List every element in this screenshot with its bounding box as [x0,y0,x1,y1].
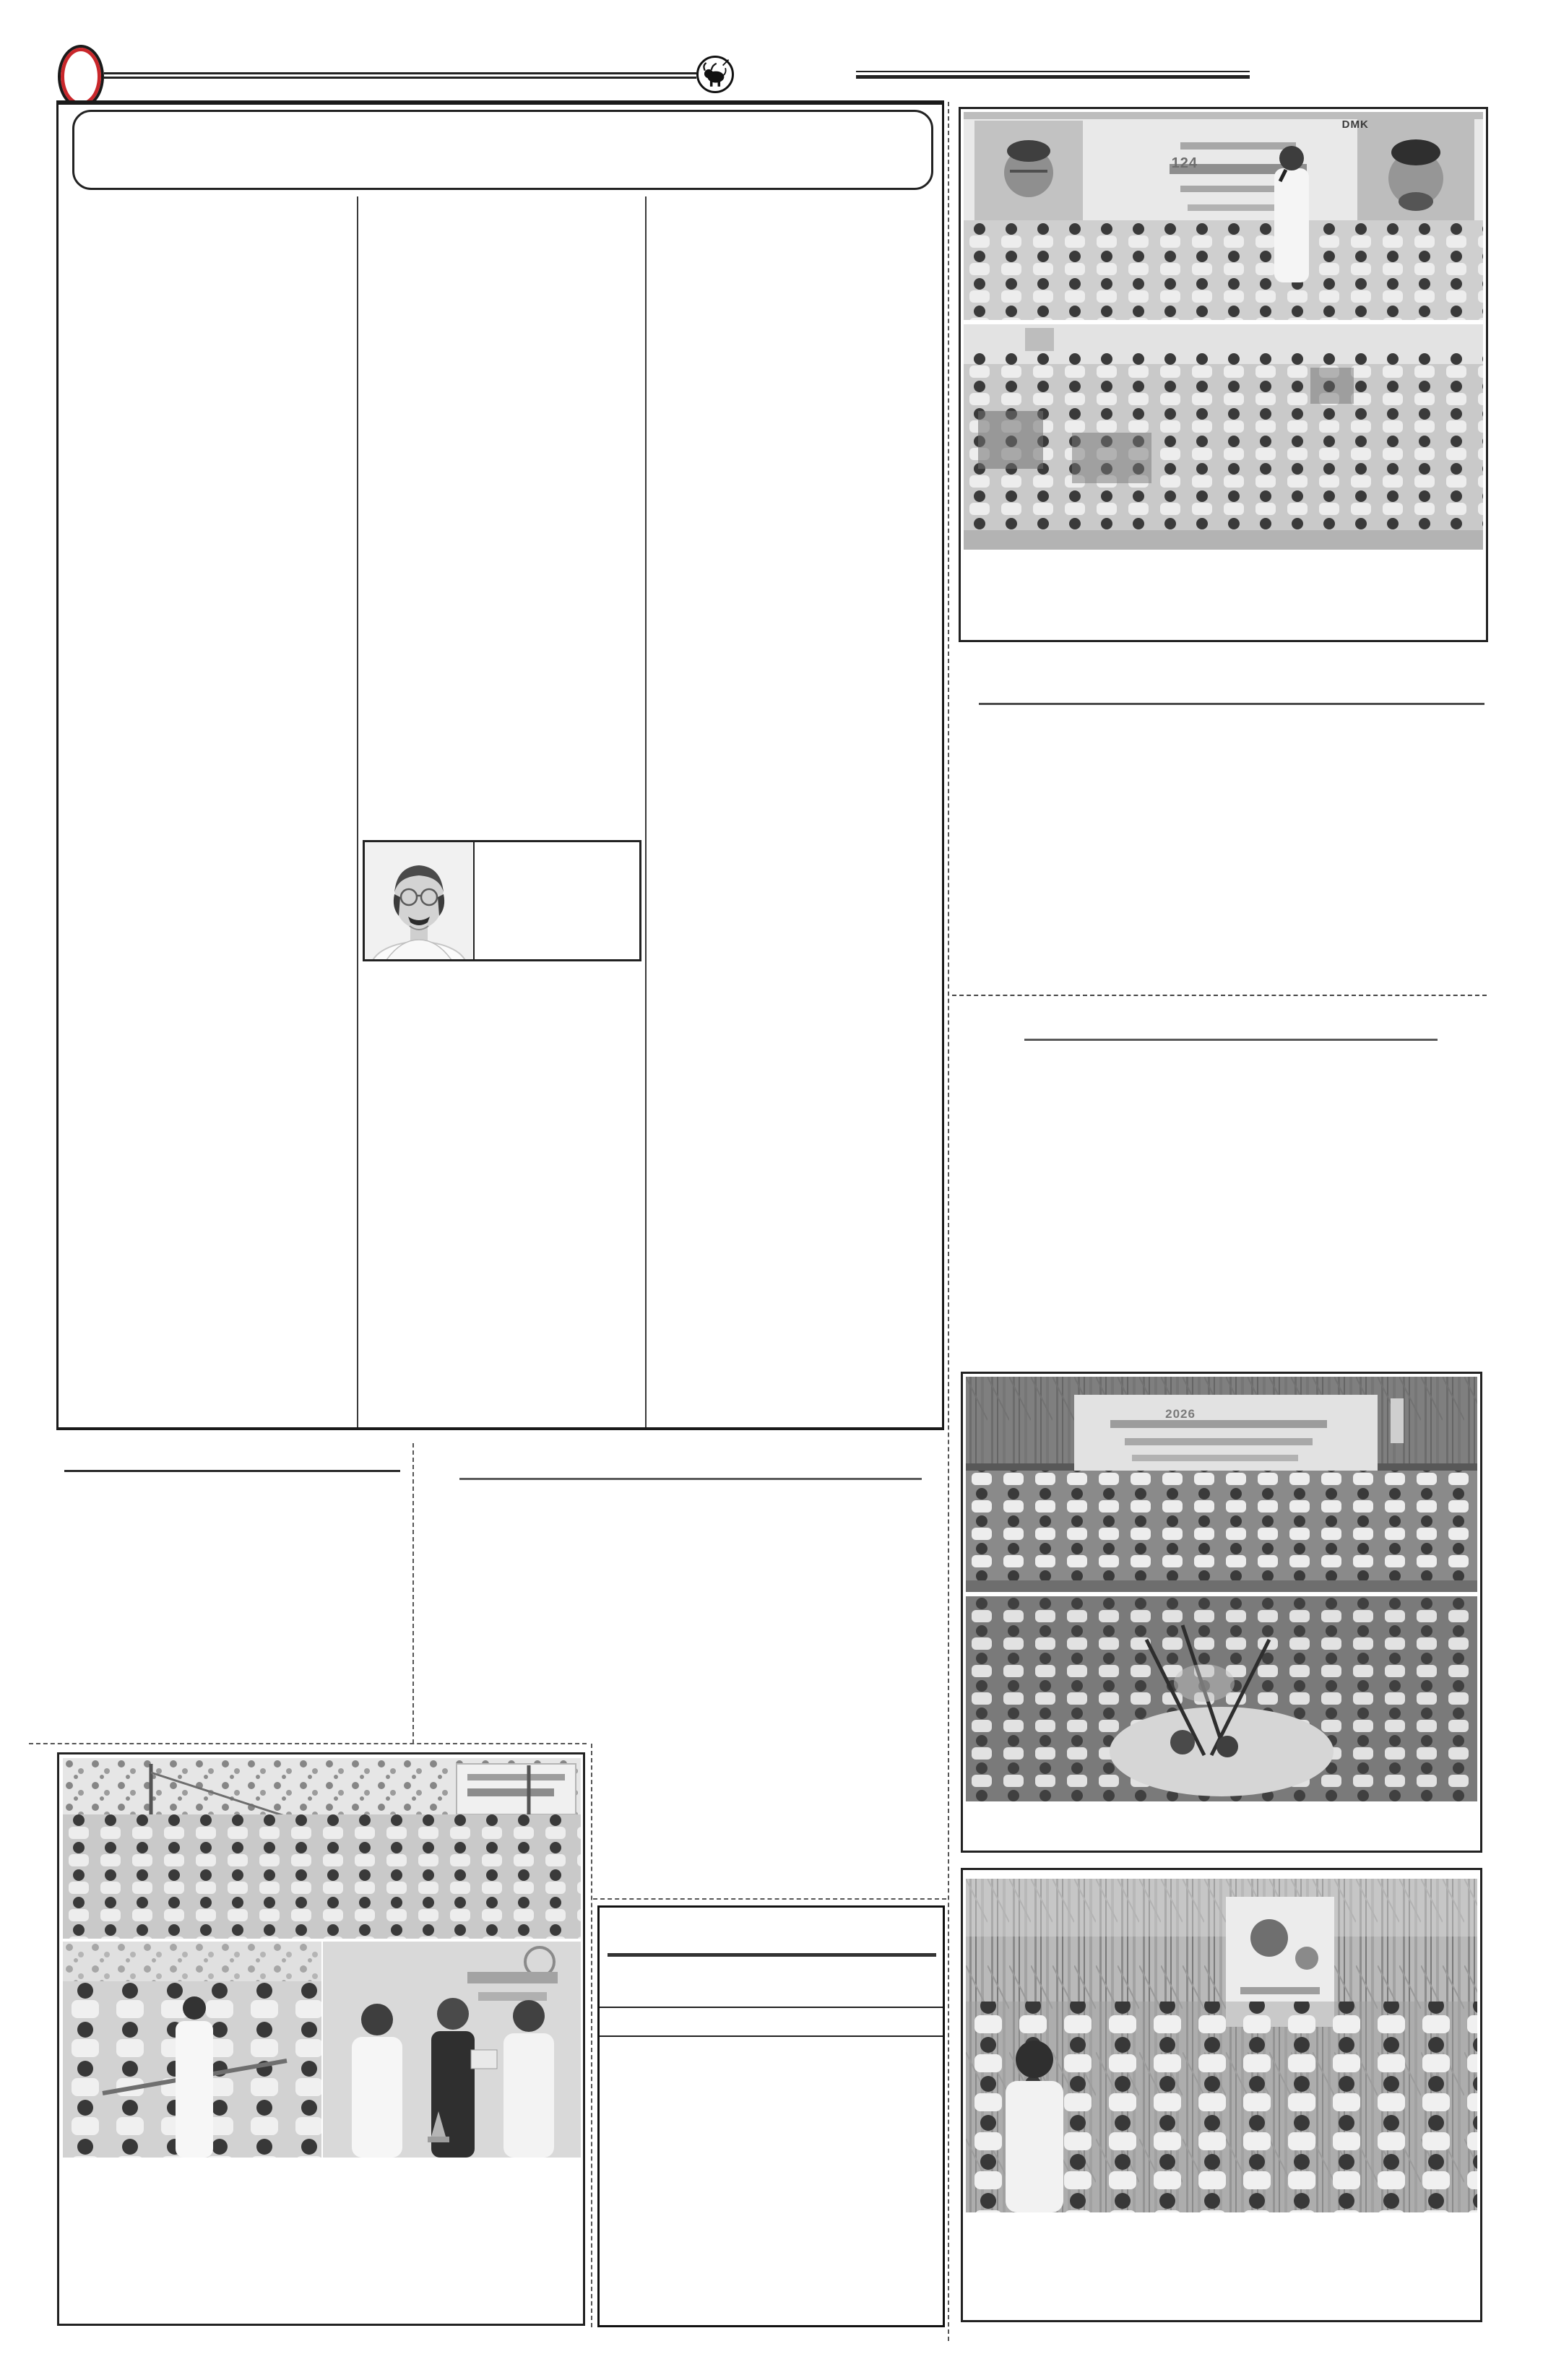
photo-sugarcane-group [966,1879,1477,2212]
column-separator-dashed-1 [412,1443,414,1744]
portrait-headshot [365,842,473,959]
middle-dashed-divider [593,1898,946,1900]
photo-night-prize-stage: 2026 [966,1377,1477,1592]
page-column-separator-dashed [948,102,949,2341]
notice-box-band-line-1 [600,2007,943,2008]
left-section-rule [64,1470,400,1472]
right-column-rule-1 [979,703,1484,705]
inline-photo-side-panel [475,842,639,959]
left-photo-frame [57,1752,585,2326]
right-middle-photo-frame: 2026 [961,1372,1482,1853]
middle-section-rule [459,1478,922,1480]
bull-emblem-icon [696,56,734,93]
inline-photo-box [363,840,641,961]
column-separator-dashed-2 [591,1744,592,2327]
top-rule-right [856,71,1250,79]
banner-label-dmk: DMK [1342,118,1369,131]
right-column-rule-2 [1024,1039,1438,1041]
newspaper-page: { "page": { "kind": "newspaper page proo… [0,0,1543,2380]
left-dashed-divider [29,1743,587,1744]
bull-glyph [699,58,732,91]
notice-box [597,1905,945,2327]
photo-memento-presentation [323,1942,581,2158]
banner-label-124: 124 [1172,155,1198,172]
photo-speaker-stage: DMK 124 [964,112,1483,320]
top-rule-left [104,72,696,79]
column-divider-1 [357,196,358,1427]
registration-mark-icon [58,45,104,108]
notice-box-band-line-2 [600,2035,943,2037]
right-top-photo-frame: DMK 124 [959,107,1488,642]
masthead-box [72,110,933,190]
photo-pongal-pot-boiling [966,1596,1477,1801]
photo-outdoor-pongal-event [63,1758,581,1939]
photo-sugarcane-cutting [63,1942,321,2158]
right-column-dotted-divider [952,995,1487,996]
column-divider-2 [645,196,647,1427]
inline-portrait-photo [365,842,475,959]
registration-mark-inner-ring [61,48,101,105]
notice-box-header-rule [608,1953,936,1957]
photo-seated-audience [964,324,1483,550]
banner-label-2026: 2026 [1165,1407,1196,1421]
main-article-box [56,100,944,1430]
right-bottom-photo-frame [961,1868,1482,2322]
